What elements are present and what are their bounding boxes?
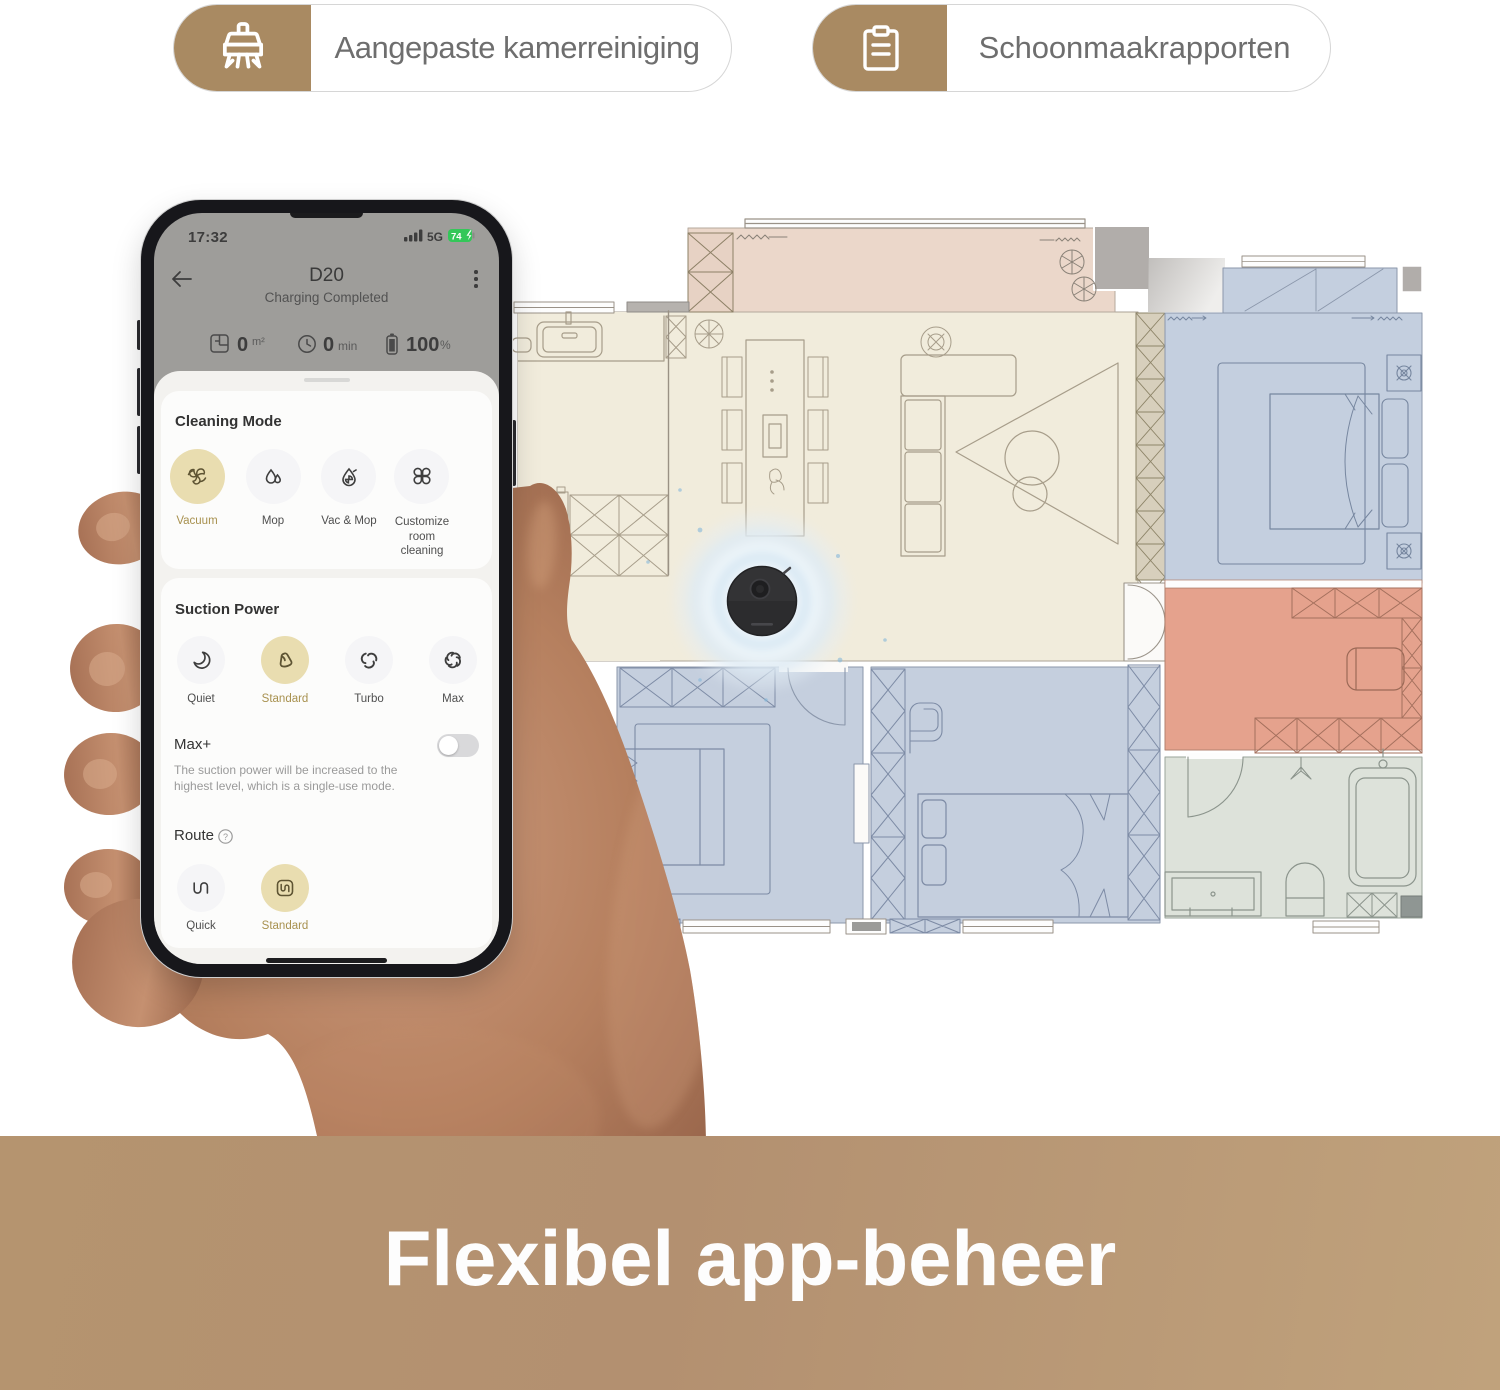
svg-text:?: ?: [223, 832, 228, 842]
svg-text:5G: 5G: [427, 230, 443, 244]
svg-text:74: 74: [451, 232, 462, 243]
